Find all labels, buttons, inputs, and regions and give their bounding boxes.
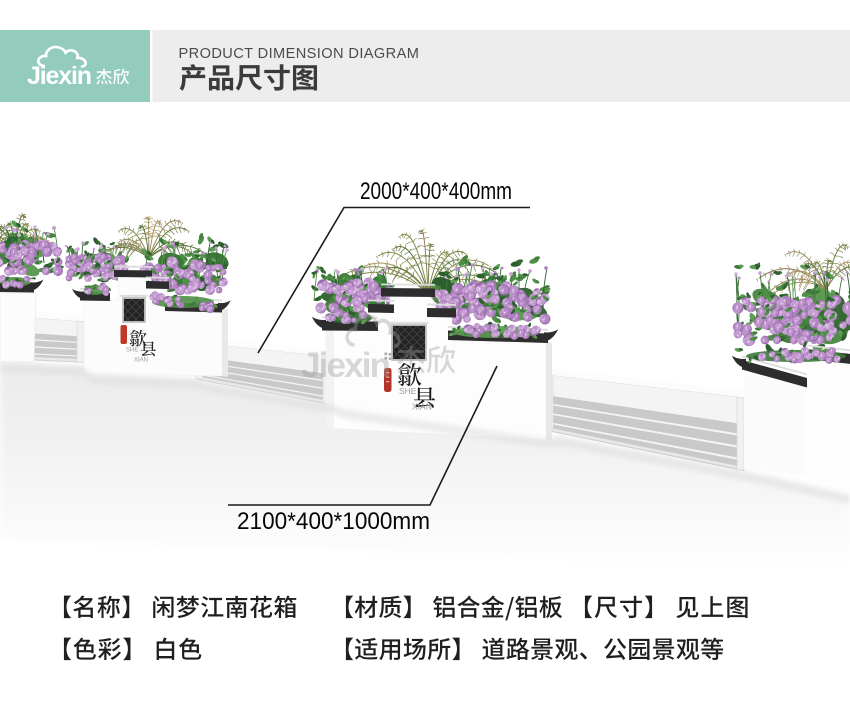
- svg-text:SHE: SHE: [399, 386, 417, 396]
- svg-text:2100*400*1000mm: 2100*400*1000mm: [237, 508, 430, 535]
- svg-text:XIAN: XIAN: [412, 402, 432, 412]
- svg-text:XIAN: XIAN: [134, 358, 148, 364]
- svg-text:Jiexin: Jiexin: [27, 62, 92, 90]
- svg-text:PRODUCT DIMENSION DIAGRAM: PRODUCT DIMENSION DIAGRAM: [179, 46, 420, 62]
- svg-text:Jiexin: Jiexin: [301, 346, 391, 385]
- svg-text:2000*400*400mm: 2000*400*400mm: [360, 178, 512, 205]
- svg-text:SHE: SHE: [126, 348, 138, 354]
